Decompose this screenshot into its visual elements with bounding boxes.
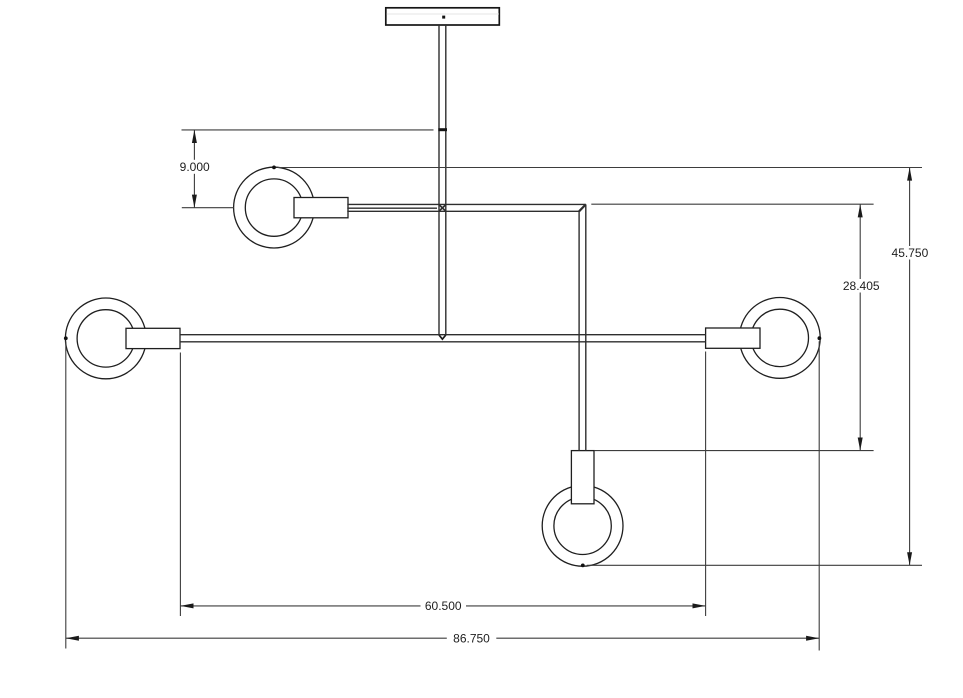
svg-text:9.000: 9.000 [180,160,210,174]
svg-text:45.750: 45.750 [892,246,929,260]
svg-text:86.750: 86.750 [453,632,490,646]
svg-text:28.405: 28.405 [843,279,880,293]
svg-text:60.500: 60.500 [425,599,462,613]
